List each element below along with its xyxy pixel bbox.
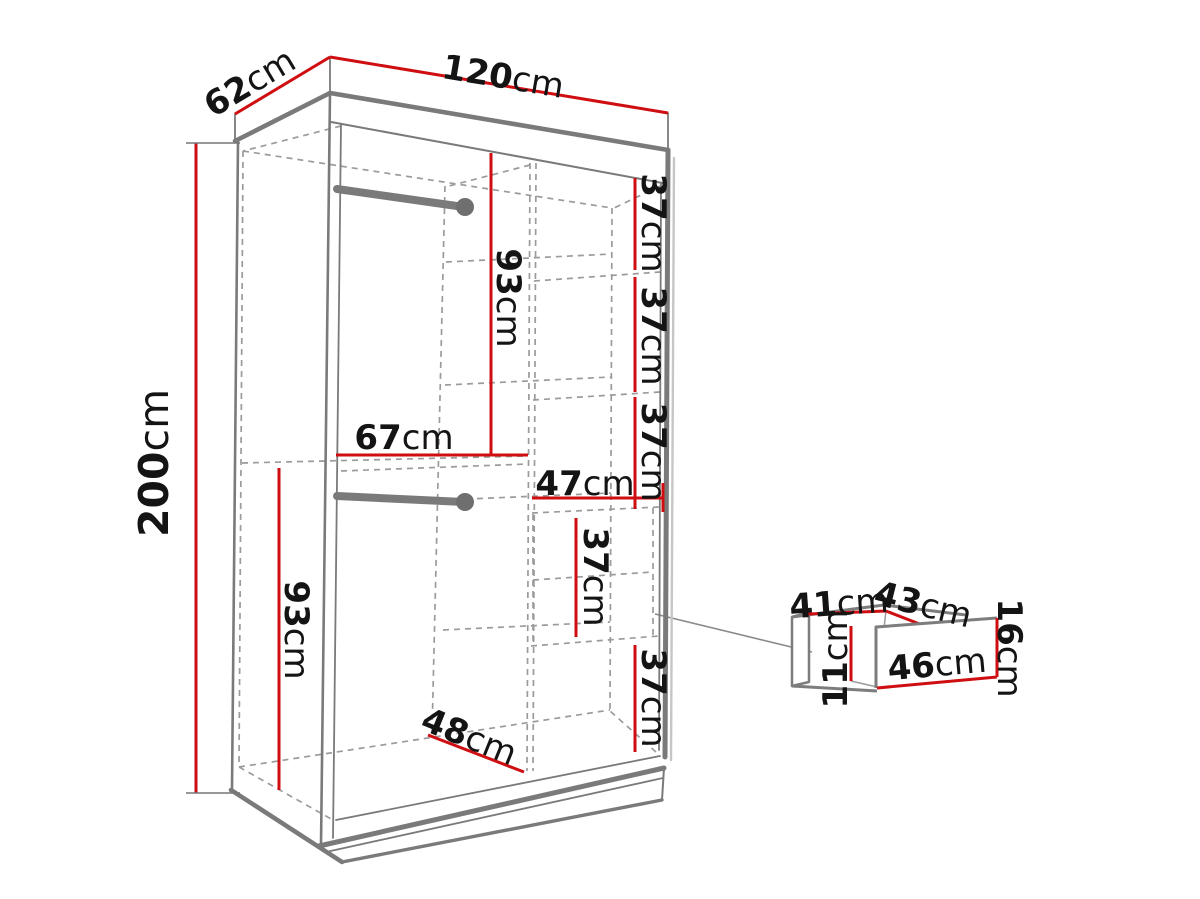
shelf-2 — [445, 377, 660, 400]
base-plinth — [319, 756, 664, 862]
dim-right-width-label: 47cm — [535, 464, 634, 504]
wardrobe-dimension-diagram: 62cm 120cm 200cm 93cm 67cm 47cm 37cm 37c… — [0, 0, 1200, 899]
divider-top-depth-edge — [445, 165, 530, 187]
dim-drawer-front-width-label: 46cm — [886, 641, 988, 689]
dim-lower-section-label: 93cm — [276, 580, 316, 679]
dim-left-width-label: 67cm — [354, 418, 453, 458]
dim-bottom-space-label: 37cm — [633, 648, 673, 747]
left-middle-shelf — [242, 456, 528, 471]
dim-width-label: 120cm — [439, 47, 567, 107]
dim-interior-depth-label: 48cm — [416, 700, 523, 774]
dimension-labels: 62cm 120cm 200cm 93cm 67cm 47cm 37cm 37c… — [130, 40, 1029, 774]
dim-drawer-bay-label: 37cm — [575, 527, 615, 626]
dim-upper-section-label: 93cm — [488, 248, 528, 347]
diagram-canvas: 62cm 120cm 200cm 93cm 67cm 47cm 37cm 37c… — [0, 0, 1200, 899]
dim-shelf-gap-1-label: 37cm — [633, 173, 673, 272]
dim-shelf-gap-2-label: 37cm — [633, 286, 673, 385]
floor-left-edge — [239, 767, 333, 820]
shelf-1 — [446, 254, 660, 281]
back-right-edge — [610, 208, 612, 710]
hanging-rail-lower — [337, 493, 474, 511]
shelf-4 — [443, 622, 659, 646]
dim-shelf-gap-3-label: 37cm — [633, 402, 673, 501]
hanging-rail-upper — [337, 189, 474, 216]
dim-drawer-front-height-label: 16cm — [989, 598, 1029, 697]
back-left-edge — [239, 151, 243, 767]
dim-drawer-inner-height-label: 11cm — [816, 609, 856, 708]
left-side-panel — [231, 93, 342, 862]
drawer-leader-line — [655, 614, 812, 652]
dim-height-label: 200cm — [130, 389, 178, 537]
